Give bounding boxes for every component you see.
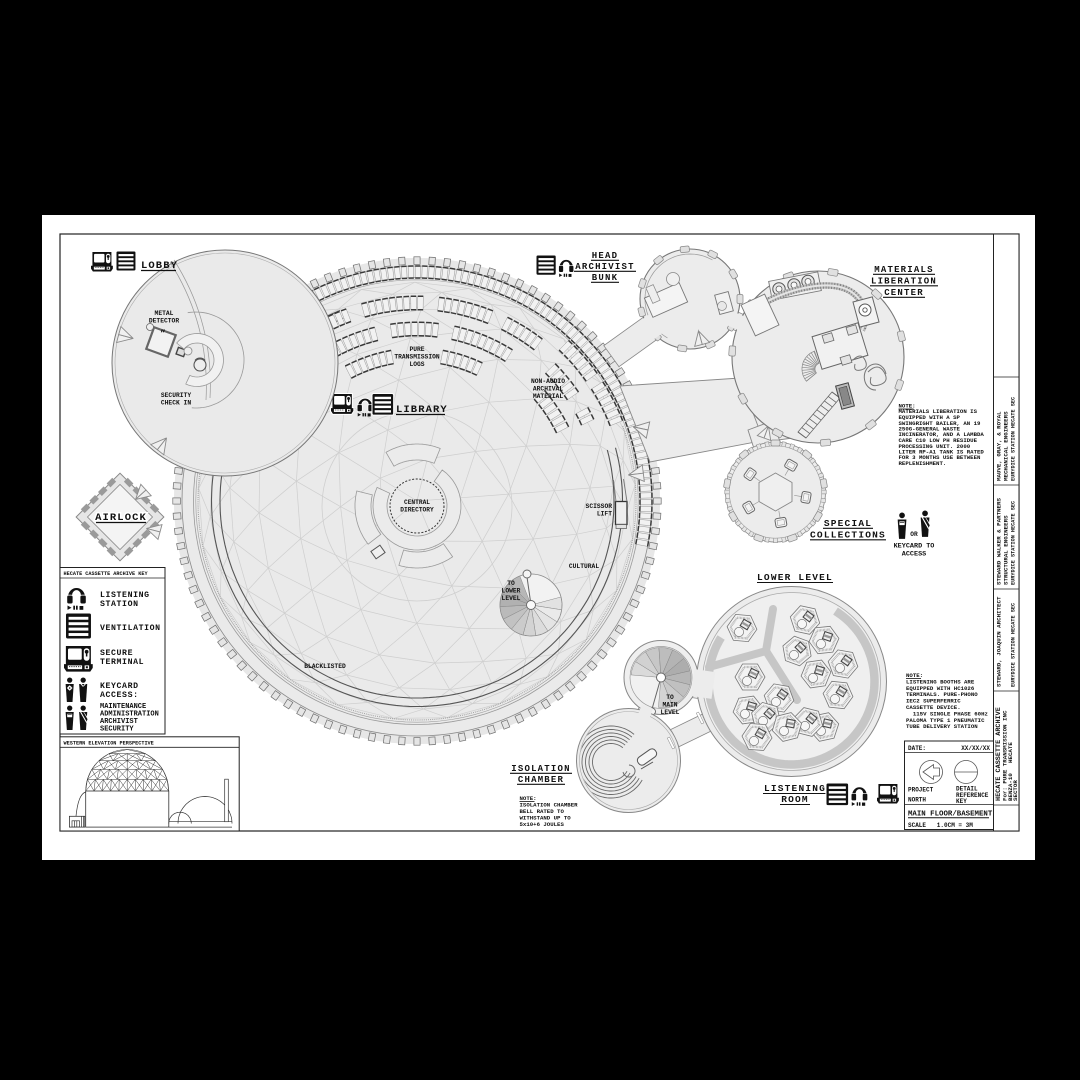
svg-text:STEWARD WALKER & PARTNERS: STEWARD WALKER & PARTNERS (996, 498, 1003, 585)
svg-text:ISOLATION: ISOLATION (511, 764, 570, 774)
svg-text:5x10+6 JOULES: 5x10+6 JOULES (520, 821, 565, 828)
svg-text:EURYDICE STATION HECATE SEC: EURYDICE STATION HECATE SEC (1011, 501, 1017, 585)
svg-text:MAUVE, GRAY, & ROYAL: MAUVE, GRAY, & ROYAL (996, 411, 1003, 481)
svg-text:OR: OR (910, 531, 918, 538)
svg-text:STEWARD, JOAQUIN ARCHITECT: STEWARD, JOAQUIN ARCHITECT (996, 596, 1003, 687)
svg-text:NORTH: NORTH (908, 797, 926, 804)
svg-text:LOWER LEVEL: LOWER LEVEL (757, 572, 833, 583)
svg-text:MAIN: MAIN (662, 702, 677, 709)
svg-text:HECATE: HECATE (1007, 742, 1014, 763)
svg-text:KEY: KEY (956, 798, 967, 805)
svg-text:HECATE CASSETTE ARCHIVE KEY: HECATE CASSETTE ARCHIVE KEY (64, 571, 149, 577)
svg-text:”: ” (160, 329, 165, 339)
svg-text:CENTER: CENTER (884, 288, 924, 298)
svg-text:LEVEL: LEVEL (502, 595, 521, 602)
svg-text:METAL: METAL (155, 310, 174, 317)
svg-text:CENTRAL: CENTRAL (404, 499, 430, 506)
svg-text:CHECK IN: CHECK IN (161, 400, 191, 407)
svg-text:SCALE 1.0CM = 3M: SCALE 1.0CM = 3M (908, 822, 973, 829)
svg-text:ROOM: ROOM (781, 794, 809, 805)
svg-text:LISTENING: LISTENING (764, 783, 826, 794)
svg-text:TO: TO (666, 694, 674, 701)
svg-text:WESTERN ELEVATION PERSPECTIVE: WESTERN ELEVATION PERSPECTIVE (64, 741, 154, 747)
svg-text:SECURE: SECURE (100, 649, 133, 658)
svg-text:LIFT: LIFT (597, 511, 612, 518)
svg-text:LIBERATION: LIBERATION (871, 277, 937, 287)
svg-text:DETECTOR: DETECTOR (149, 318, 179, 325)
svg-text:LOGS: LOGS (409, 361, 424, 368)
svg-text:SECTOR: SECTOR (1012, 780, 1019, 801)
svg-text:KEYCARD TO: KEYCARD TO (894, 543, 935, 551)
svg-text:EURYDICE STATION HECATE SEC: EURYDICE STATION HECATE SEC (1011, 397, 1017, 481)
svg-text:SCISSOR: SCISSOR (586, 503, 613, 510)
svg-text:REPLENISHMENT.: REPLENISHMENT. (899, 460, 947, 467)
svg-text:MATERIAL: MATERIAL (533, 393, 563, 400)
svg-text:ACCESS:: ACCESS: (100, 691, 139, 700)
svg-text:XX/XX/XX: XX/XX/XX (961, 745, 990, 752)
svg-text:DIRECTORY: DIRECTORY (400, 507, 434, 514)
svg-text:DATE:: DATE: (908, 745, 926, 752)
svg-text:MATERIALS: MATERIALS (874, 265, 933, 275)
svg-text:STRUCTURAL ENGINEERS: STRUCTURAL ENGINEERS (1003, 515, 1010, 585)
svg-text:BUNK: BUNK (592, 273, 618, 283)
svg-text:LISTENING: LISTENING (100, 591, 150, 600)
svg-text:MECHANICAL ENGINEERS: MECHANICAL ENGINEERS (1003, 411, 1010, 481)
svg-text:TERMINAL: TERMINAL (100, 658, 144, 667)
svg-text:ARCHIVIST: ARCHIVIST (575, 262, 634, 272)
svg-text:HEAD: HEAD (592, 251, 618, 261)
svg-text:PROJECT: PROJECT (908, 787, 934, 794)
svg-text:KEYCARD: KEYCARD (100, 682, 139, 691)
svg-text:SPECIAL: SPECIAL (824, 518, 872, 529)
svg-text:VENTILATION: VENTILATION (100, 624, 161, 633)
svg-text:SECURITY: SECURITY (100, 726, 134, 734)
svg-text:PURE: PURE (409, 346, 424, 353)
svg-text:NON-AUDIO: NON-AUDIO (531, 378, 565, 385)
svg-text:CULTURAL: CULTURAL (569, 563, 599, 570)
svg-text:EURYDICE STATION HECATE SEC: EURYDICE STATION HECATE SEC (1011, 603, 1017, 687)
svg-text:TO: TO (507, 580, 515, 587)
svg-text:LEVEL: LEVEL (661, 709, 680, 716)
svg-text:ARCHIVAL: ARCHIVAL (533, 386, 563, 393)
svg-text:TUBE DELIVERY STATION: TUBE DELIVERY STATION (906, 723, 978, 730)
svg-text:CHAMBER: CHAMBER (518, 775, 564, 785)
svg-text:COLLECTIONS: COLLECTIONS (810, 530, 886, 541)
svg-text:SECURITY: SECURITY (161, 392, 191, 399)
svg-text:BLACKLISTED: BLACKLISTED (304, 663, 346, 670)
svg-text:STATION: STATION (100, 600, 139, 609)
svg-text:LOWER: LOWER (502, 588, 521, 595)
svg-text:ACCESS: ACCESS (902, 551, 926, 559)
svg-text:TRANSMISSION: TRANSMISSION (394, 354, 440, 361)
